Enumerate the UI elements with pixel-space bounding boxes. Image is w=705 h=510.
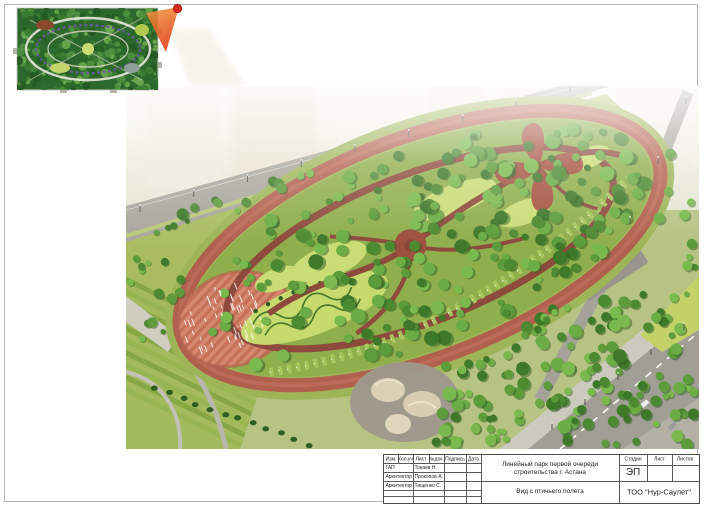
rev-header-izm: Изм. (386, 457, 397, 462)
rev-header-ndok: №док. (429, 457, 444, 462)
name-architect2: Тищенко С. (415, 484, 442, 489)
name-gap: Токаев Н. (415, 466, 437, 471)
company-name: ТОО "Нур-Саулет" (627, 488, 691, 496)
project-title-line1: Линейный парк первой очереди (502, 461, 598, 468)
project-title-line2: строительства г. Астана (514, 469, 586, 476)
role-gap: ГАП (386, 466, 395, 471)
sheets-header: Листов (677, 458, 693, 463)
rev-header-koluch: Кол.уч (398, 457, 413, 462)
aerial-render (56, 34, 705, 487)
sheet-graphics (0, 0, 705, 510)
stage-value: ЭП (626, 468, 640, 478)
stage-header: Стадия (624, 458, 641, 463)
sheet-header: Лист (654, 458, 665, 463)
name-architect1: Прокопов А. (415, 475, 443, 480)
rev-header-podpis: Подпись (445, 457, 465, 462)
rev-header-data: Дата (468, 457, 479, 462)
view-title: Вид с птичьего полета (516, 489, 584, 496)
rev-header-list: Лист (416, 457, 427, 462)
drawing-sheet: { "title_block": { "rev_header": ["Изм."… (0, 0, 705, 510)
role-architect1: Архитектор (386, 475, 412, 480)
viewpoint-marker-icon (173, 4, 181, 12)
role-architect2: Архитектор (386, 484, 412, 489)
title-block: Изм. Кол.уч Лист №док. Подпись Дата ГАП … (383, 454, 700, 504)
site-plan-thumbnail (13, 4, 182, 93)
